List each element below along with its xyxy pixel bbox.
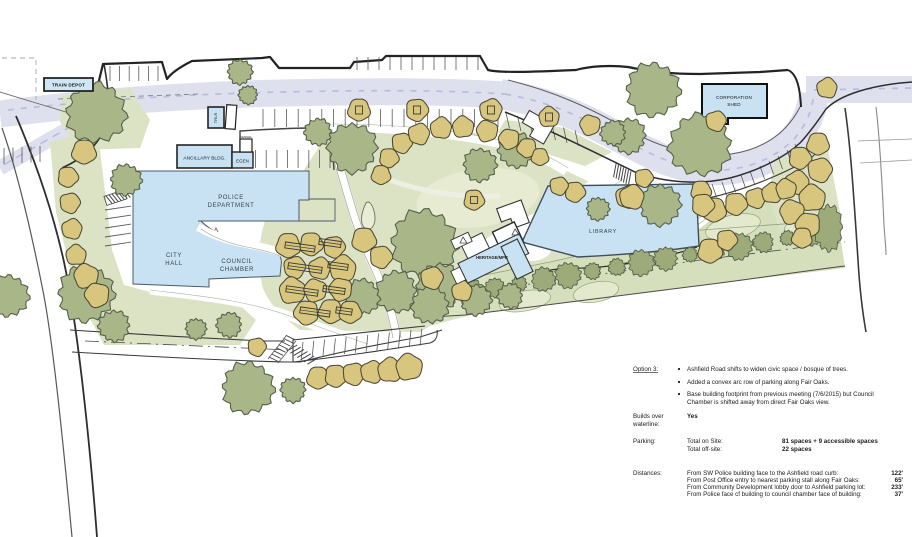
- svg-text:From Post Office entry to near: From Post Office entry to nearest parkin…: [687, 477, 860, 484]
- svg-text:Builds over: Builds over: [633, 413, 664, 420]
- svg-text:Added a convex arc row of park: Added a convex arc row of parking along …: [687, 379, 830, 386]
- svg-text:Base building footprint from p: Base building footprint from previous me…: [687, 391, 874, 398]
- svg-text:37': 37': [895, 491, 904, 498]
- svg-text:ANCILLARY BLDG.: ANCILLARY BLDG.: [183, 156, 225, 162]
- svg-text:CHAMBER: CHAMBER: [220, 267, 254, 273]
- svg-text:EGEN: EGEN: [236, 159, 249, 164]
- svg-text:122': 122': [891, 470, 903, 477]
- svg-text:DEPARTMENT: DEPARTMENT: [208, 203, 255, 209]
- svg-text:Distances:: Distances:: [633, 470, 662, 477]
- svg-text:POLICE: POLICE: [218, 195, 244, 201]
- svg-text:233': 233': [891, 484, 903, 491]
- svg-text:From Community Development lob: From Community Development lobby door to…: [687, 484, 866, 491]
- svg-text:Total on Site:: Total on Site:: [687, 438, 723, 445]
- svg-text:TRLR: TRLR: [213, 113, 218, 124]
- svg-text:HALL: HALL: [165, 261, 182, 267]
- svg-text:waterline:: waterline:: [632, 421, 660, 428]
- svg-text:CITY: CITY: [166, 253, 182, 259]
- svg-text:From Police face cf building t: From Police face cf building to council …: [687, 491, 862, 498]
- svg-text:From SW Police building face t: From SW Police building face to the Ashf…: [687, 470, 839, 477]
- svg-text:CORPORATION: CORPORATION: [716, 95, 752, 100]
- svg-text:Ashfield Road shifts to widen: Ashfield Road shifts to widen civic spac…: [687, 366, 848, 373]
- svg-text:81 spaces + 9 accessible space: 81 spaces + 9 accessible spaces: [782, 438, 878, 445]
- svg-text:TRAIN DEPOT: TRAIN DEPOT: [52, 83, 85, 88]
- svg-text:Chamber is shifted away from d: Chamber is shifted away from direct Fair…: [687, 399, 830, 406]
- svg-text:COUNCIL: COUNCIL: [221, 259, 252, 265]
- svg-text:Total off-site:: Total off-site:: [687, 446, 722, 453]
- svg-text:Parking:: Parking:: [633, 438, 656, 445]
- svg-text:22 spaces: 22 spaces: [782, 446, 812, 453]
- svg-text:65': 65': [895, 477, 904, 484]
- svg-text:SHED: SHED: [727, 102, 741, 107]
- svg-text:Option 3:: Option 3:: [633, 366, 658, 373]
- svg-text:HERITAGE/MPR: HERITAGE/MPR: [476, 255, 508, 260]
- svg-text:KENNEL: KENNEL: [240, 135, 252, 139]
- svg-text:LIBRARY: LIBRARY: [589, 229, 617, 235]
- svg-text:Yes: Yes: [687, 413, 698, 420]
